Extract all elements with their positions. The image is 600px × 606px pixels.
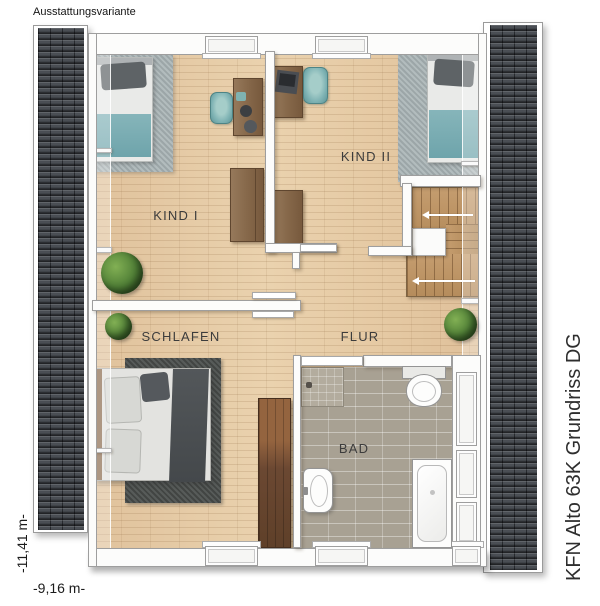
bathtub	[412, 459, 452, 548]
plan-title: KFN Alto 63K Grundriss DG	[563, 333, 586, 581]
desk-item	[244, 120, 257, 133]
wall-bad-west	[293, 355, 301, 548]
sink-basin	[310, 475, 328, 507]
bed-master	[95, 368, 211, 481]
wall-outer-bottom	[88, 548, 487, 567]
window	[456, 502, 477, 544]
wall-stair-north	[400, 175, 481, 187]
desk-chair	[303, 67, 328, 104]
rafter-tie	[95, 148, 112, 153]
rafter-tie	[95, 247, 112, 253]
wall-stub	[292, 252, 300, 269]
stair-landing	[412, 228, 446, 256]
window	[205, 546, 258, 566]
window-sill	[312, 53, 371, 59]
door-leaf-bad	[301, 356, 363, 366]
bed-throw	[169, 369, 209, 482]
shower	[301, 367, 344, 407]
window	[456, 450, 477, 498]
window	[452, 546, 481, 566]
cabinet-kind1	[230, 168, 264, 242]
room-label-schlafen: SCHLAFEN	[131, 329, 231, 344]
toilet	[406, 374, 442, 407]
roof-strip-right	[483, 22, 543, 573]
cabinet-kind2	[272, 190, 303, 248]
laptop-screen	[279, 73, 296, 87]
dimension-width: -9,16 m-	[33, 580, 85, 596]
room-label-kind1: KIND I	[126, 208, 226, 223]
stair-arrow-head-icon	[412, 277, 419, 285]
window	[456, 372, 477, 446]
roof-tiles-left	[38, 28, 84, 530]
variant-label: Ausstattungsvariante	[33, 6, 136, 18]
door-leaf-schlafen	[252, 311, 294, 318]
door-leaf-kind2	[300, 244, 337, 252]
shower-drain-icon	[306, 382, 312, 388]
bathtub-drain-icon	[430, 490, 435, 495]
wall-stair-guard-h	[368, 246, 412, 256]
dimension-height: -11,41 m-	[14, 514, 30, 573]
roof-tiles-right	[490, 25, 537, 570]
plant	[101, 252, 143, 294]
desk-chair	[210, 92, 233, 124]
room-label-flur: FLUR	[310, 329, 410, 344]
cabinet-line	[255, 169, 256, 241]
desk-kind1	[233, 78, 263, 136]
room-label-kind2: KIND II	[316, 149, 416, 164]
window	[315, 546, 368, 566]
wall-schlafen-north	[92, 300, 301, 311]
wall-outer-top	[88, 33, 487, 55]
sink-tap-icon	[303, 487, 308, 495]
sink	[303, 468, 333, 513]
wall-kind-divider	[265, 51, 275, 253]
toilet-bowl	[412, 381, 436, 402]
laptop-icon	[275, 70, 300, 95]
desk-kind2	[272, 66, 303, 118]
plant	[105, 313, 132, 340]
room-label-bad: BAD	[304, 441, 404, 456]
door-leaf-schlafen	[252, 292, 296, 299]
floorplan-page: Ausstattungsvariante	[0, 0, 600, 606]
stair-arrow-head-icon	[422, 211, 429, 219]
wardrobe	[258, 398, 291, 548]
bed-pillow-dark	[140, 372, 171, 403]
desk-item	[236, 92, 246, 101]
roof-strip-left	[33, 25, 88, 533]
rafter-tie	[95, 448, 112, 453]
desk-item	[240, 105, 252, 117]
bathtub-basin	[417, 465, 447, 542]
plant	[444, 308, 477, 341]
floorplan: KIND I KIND II SCHLAFEN FLUR BAD	[88, 33, 487, 567]
window-sill	[202, 53, 261, 59]
